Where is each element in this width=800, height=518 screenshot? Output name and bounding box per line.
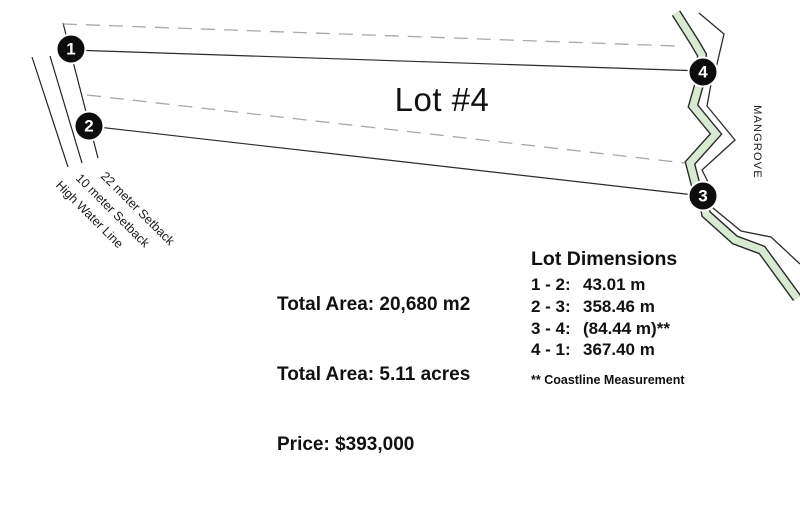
lot-line-2-3 (89, 126, 703, 196)
marker-2: 2 (74, 111, 105, 142)
lot-survey-diagram: 1 2 3 4 Lot #4 22 meter Setback 10 meter… (0, 0, 800, 518)
dimension-row-1-2: 1 - 2: 43.01 m (531, 274, 685, 296)
dimension-value: 367.40 m (583, 339, 655, 361)
setback-dashed-middle (87, 95, 685, 163)
marker-1: 1 (56, 34, 87, 65)
dimension-row-2-3: 2 - 3: 358.46 m (531, 296, 685, 318)
dimension-row-4-1: 4 - 1: 367.40 m (531, 339, 685, 361)
dimension-row-3-4: 3 - 4: (84.44 m)** (531, 318, 685, 340)
lot-dimensions-heading: Lot Dimensions (531, 247, 685, 271)
mangrove-band (676, 13, 797, 298)
lot-title: Lot #4 (395, 81, 490, 119)
total-area-acres: Total Area: 5.11 acres (277, 363, 470, 386)
lot-dimensions-block: Lot Dimensions 1 - 2: 43.01 m 2 - 3: 358… (531, 247, 685, 387)
high-water-line (32, 57, 68, 167)
dimension-value: (84.44 m)** (583, 318, 670, 340)
dimension-value: 358.46 m (583, 296, 655, 318)
coastline-footnote: ** Coastline Measurement (531, 373, 685, 387)
total-area-m2: Total Area: 20,680 m2 (277, 293, 470, 316)
dimension-label: 3 - 4: (531, 318, 583, 340)
dimension-label: 2 - 3: (531, 296, 583, 318)
dimension-label: 1 - 2: (531, 274, 583, 296)
summary-block: Total Area: 20,680 m2 Total Area: 5.11 a… (277, 246, 470, 503)
marker-4: 4 (688, 57, 719, 88)
setback-dashed-top (63, 24, 676, 46)
dimension-label: 4 - 1: (531, 339, 583, 361)
marker-3: 3 (688, 181, 719, 212)
label-mangrove: MANGROVE (751, 105, 763, 179)
lot-line-1-4 (71, 50, 703, 71)
price: Price: $393,000 (277, 433, 470, 456)
dimension-value: 43.01 m (583, 274, 645, 296)
setback-line-10m (50, 56, 82, 163)
